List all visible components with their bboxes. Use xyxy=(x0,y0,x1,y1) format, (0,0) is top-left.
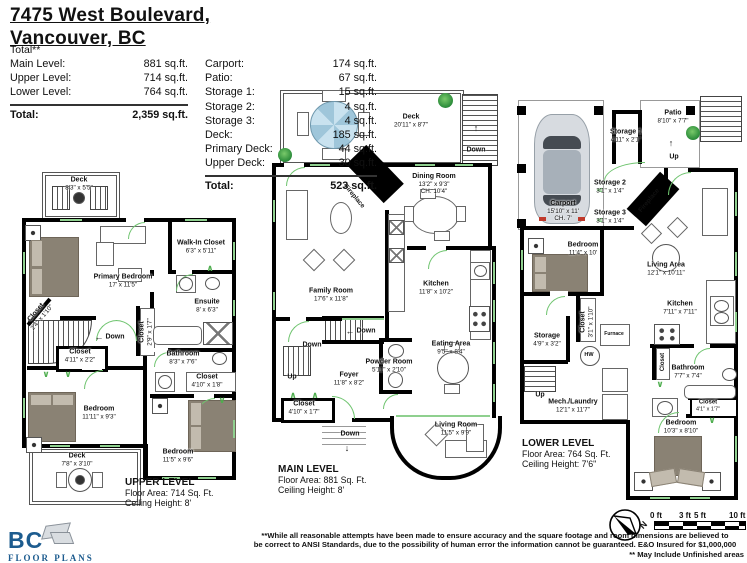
row-label: Upper Deck: xyxy=(205,156,265,170)
window xyxy=(455,164,473,166)
room-dims: 15'10" x 11' xyxy=(547,208,579,215)
address-line1: 7475 West Boulevard, xyxy=(10,4,210,27)
wall xyxy=(168,218,172,272)
door-arc xyxy=(546,296,565,315)
pillow xyxy=(52,394,74,406)
window xyxy=(60,219,82,221)
door-arc xyxy=(668,172,691,195)
area-table-levels: Main Level:881 sq.ft. Upper Level:714 sq… xyxy=(10,57,188,122)
room-label: Eating Area9'5" x 8'4" xyxy=(432,341,471,356)
stove xyxy=(469,306,490,332)
window xyxy=(415,164,435,166)
level-ceiling: Ceiling Height: 8' xyxy=(125,498,214,508)
room-name: Carport xyxy=(547,200,579,208)
room-dims: 11'4" x 10' xyxy=(568,250,599,257)
room-ceiling: CH. 10'4" xyxy=(412,188,456,195)
stairs-down-label: Down xyxy=(302,342,321,349)
room-dims: 4'11" x 2'2" xyxy=(65,357,96,364)
row-value: 4 sq.ft. xyxy=(345,114,377,128)
wall xyxy=(600,230,604,294)
car-taillight xyxy=(578,217,585,221)
room-name: Bedroom xyxy=(568,242,599,250)
room-dims: 8'3" x 7'6" xyxy=(166,359,199,366)
stairs-down-label: Down xyxy=(356,328,375,335)
room-label: Bedroom10'3" x 8'10" xyxy=(664,420,699,435)
table-total-row: Total:2,359 sq.ft. xyxy=(10,108,188,122)
bifold-door-icon: ∨ xyxy=(218,396,225,404)
room-name: Bathroom xyxy=(166,351,199,359)
bifold-door-icon: ∨ xyxy=(708,416,715,424)
row-value: 67 sq.ft. xyxy=(339,71,377,85)
wall xyxy=(524,360,568,364)
row-label: Lower Level: xyxy=(10,85,71,99)
nightstand xyxy=(702,472,721,491)
room-dims: 12'1" x 11'7" xyxy=(548,407,597,414)
room-name: Powder Room xyxy=(365,359,412,367)
level-ceiling: Ceiling Height: 7'6" xyxy=(522,459,611,469)
deck-chair xyxy=(92,472,103,488)
bifold-door-icon: ∧ xyxy=(206,264,213,272)
window xyxy=(493,384,495,402)
room-name: Closet xyxy=(696,399,720,407)
room-name: Kitchen xyxy=(419,281,453,289)
sink xyxy=(179,277,193,291)
post xyxy=(594,106,603,115)
room-label: Patio8'10" x 7'7" xyxy=(657,110,688,125)
room-dims: 9'5" x 8'4" xyxy=(432,349,471,356)
room-label: Closet4'10" x 1'7" xyxy=(288,401,319,416)
wall xyxy=(488,163,492,249)
room-name: Foyer xyxy=(334,372,365,380)
room-name: Family Room xyxy=(309,288,353,296)
wall xyxy=(524,226,634,230)
stairs-up-label: Up xyxy=(535,392,544,399)
room-name: Deck xyxy=(65,177,93,185)
room-name: Closet xyxy=(191,374,222,382)
scale-tick-label: 10 ft xyxy=(729,511,745,520)
total-value: 2,359 sq.ft. xyxy=(132,108,188,122)
coffee-table xyxy=(330,202,352,234)
dining-chair xyxy=(434,231,450,241)
car-taillight xyxy=(539,217,546,221)
scale-tick-label: 0 ft xyxy=(650,511,662,520)
window xyxy=(233,242,235,260)
level-title-block: MAIN LEVEL Floor Area: 881 Sq. Ft. Ceili… xyxy=(278,464,367,495)
room-dims: 2'9" x 1'7" xyxy=(147,318,154,346)
wall xyxy=(379,338,412,342)
stairs xyxy=(524,366,556,392)
row-value: 30 sq.ft. xyxy=(339,156,377,170)
row-label: Patio: xyxy=(205,71,233,85)
bifold-door-icon: ∧ xyxy=(311,391,318,399)
room-name: Storage 3 xyxy=(594,210,626,218)
wall xyxy=(272,317,290,321)
stairs xyxy=(462,94,498,166)
sink xyxy=(474,265,487,277)
room-dims: 4'11" x 2'1" xyxy=(610,137,642,144)
car-windshield xyxy=(543,136,581,149)
room-name: Deck xyxy=(61,453,92,461)
room-label: Mech./Laundry12'1" x 11'7" xyxy=(548,399,597,414)
room-dims: 6'3" x 5'11" xyxy=(177,248,225,255)
room-label: Bathroom8'3" x 7'6" xyxy=(166,351,199,366)
window xyxy=(233,300,235,316)
window xyxy=(735,252,737,276)
door-arc xyxy=(128,222,145,239)
door-arc xyxy=(428,250,447,269)
row-label: Deck: xyxy=(205,128,233,142)
room-label: Carport15'10" x 11'CH. 7' xyxy=(547,200,579,222)
door-arc xyxy=(332,396,355,419)
sink xyxy=(158,375,172,389)
row-label: Primary Deck: xyxy=(205,142,273,156)
pillow xyxy=(30,394,52,406)
room-name: Dining Room xyxy=(412,173,456,181)
window xyxy=(23,398,25,418)
row-label: Main Level: xyxy=(10,57,65,71)
room-name: HW xyxy=(584,351,593,359)
bathtub xyxy=(153,326,202,345)
room-dims: 3'1" x 1'4" xyxy=(594,218,626,225)
scale-tick-label: 5 ft xyxy=(694,511,706,520)
window xyxy=(735,312,737,332)
room-name: Eating Area xyxy=(432,341,471,349)
pillow xyxy=(31,240,43,267)
room-name: Closet xyxy=(580,306,588,337)
door-arc xyxy=(383,394,398,409)
room-dims: 11'11" x 9'3" xyxy=(82,414,116,421)
disclaimer-line2: be correct to ANSI Standards, due to the… xyxy=(245,540,745,549)
wall xyxy=(352,418,392,422)
wall xyxy=(566,316,570,362)
room-name: Storage 1 xyxy=(610,129,642,137)
sink xyxy=(388,344,404,358)
scale-bar-row xyxy=(655,526,745,530)
window xyxy=(690,497,710,499)
stairs-up-label: Up xyxy=(669,154,678,161)
wall xyxy=(306,317,342,321)
pillow xyxy=(31,268,43,295)
up-arrow-icon: ↑ xyxy=(474,123,479,133)
room-name: Bedroom xyxy=(82,406,116,414)
scale-bar xyxy=(654,521,746,530)
shrub-icon xyxy=(438,93,453,108)
room-label: Storage 23'1" x 1'4" xyxy=(594,180,626,195)
table-row: Patio:67 sq.ft. xyxy=(205,71,377,85)
armchair xyxy=(667,217,688,238)
room-ceiling: CH. 7' xyxy=(547,215,579,222)
room-name: Mech./Laundry xyxy=(548,399,597,407)
door-arc xyxy=(84,370,103,389)
room-label: Living Room11'5" x 9'9" xyxy=(435,422,477,437)
room-name: Patio xyxy=(657,110,688,118)
wall xyxy=(60,316,96,320)
row-label: Storage 1: xyxy=(205,85,255,99)
window xyxy=(50,445,70,447)
room-label: Kitchen7'11" x 7'11" xyxy=(663,301,697,316)
window xyxy=(735,192,737,216)
sink xyxy=(657,401,673,415)
logo-subtext: FLOOR PLANS xyxy=(8,553,94,563)
eating-table xyxy=(437,352,469,384)
room-dims: 11'5" x 9'9" xyxy=(435,430,477,437)
deck-table xyxy=(73,192,85,204)
armchair xyxy=(641,223,662,244)
room-dims: 7'7" x 7'4" xyxy=(671,373,704,380)
room-label: Storage4'9" x 3'2" xyxy=(533,333,561,348)
level-title: LOWER LEVEL xyxy=(522,438,611,449)
row-label: Storage 3: xyxy=(205,114,255,128)
room-dims: 13'2" x 9'3" xyxy=(412,181,456,188)
disclaimer-line1: **While all reasonable attempts have bee… xyxy=(245,531,745,540)
chair xyxy=(444,384,460,394)
dining-chair xyxy=(404,206,414,222)
level-area: Floor Area: 881 Sq. Ft. xyxy=(278,475,367,485)
bathtub xyxy=(684,385,736,399)
shower xyxy=(203,322,233,345)
room-label: Closet4'10" x 1'8" xyxy=(191,374,222,389)
total-label: Total: xyxy=(10,108,39,122)
row-value: 881 sq.ft. xyxy=(144,57,188,71)
level-ceiling: Ceiling Height: 8' xyxy=(278,485,367,495)
room-label: Closet3'1" x 1'10" xyxy=(580,306,595,337)
room-dims: 7'8" x 3'10" xyxy=(61,461,92,468)
armchair xyxy=(333,249,356,272)
room-name: Primary Bedroom xyxy=(94,274,153,282)
room-name: Closet xyxy=(139,318,147,346)
room-label: Primary Bedroom17' x 11'5" xyxy=(94,274,153,289)
room-label: Closet4'1" x 1'7" xyxy=(696,399,720,414)
room-label: Bedroom11'5" x 9'6" xyxy=(163,449,194,464)
appliance xyxy=(389,248,404,263)
logo-house-icon xyxy=(50,532,74,544)
armchair xyxy=(303,249,326,272)
room-dims: 4'10" x 1'7" xyxy=(288,409,319,416)
room-label: Closet2'9" x 1'7" xyxy=(139,318,154,346)
door-arc xyxy=(604,162,645,181)
level-title: UPPER LEVEL xyxy=(125,477,214,488)
room-name: Closet xyxy=(659,353,667,371)
steps-down-label: Down xyxy=(340,431,359,438)
bifold-door-icon: ∧ xyxy=(289,391,296,399)
open-boundary xyxy=(396,415,490,417)
table-row: Storage 2:4 sq.ft. xyxy=(205,100,377,114)
room-name: Closet xyxy=(288,401,319,409)
toilet xyxy=(205,277,220,290)
room-dims: 8' x 6'3" xyxy=(194,307,219,314)
room-name: Bedroom xyxy=(163,449,194,457)
dining-table xyxy=(411,196,459,234)
room-label: Deck20'11" x 8'7" xyxy=(394,114,428,129)
stairs xyxy=(700,96,742,142)
room-label: Storage 14'11" x 2'1" xyxy=(610,129,642,144)
pillow xyxy=(534,273,547,290)
window xyxy=(185,219,207,221)
logo-text: BC xyxy=(8,527,43,554)
divider xyxy=(10,104,188,106)
pillow xyxy=(190,426,202,450)
dryer xyxy=(602,394,628,420)
nightstand xyxy=(25,225,41,241)
room-dims: 20'11" x 8'7" xyxy=(394,122,428,129)
toilet xyxy=(722,368,737,381)
post xyxy=(517,164,526,173)
toilet xyxy=(212,352,227,365)
window xyxy=(650,497,670,499)
room-dims: 5'11" x 2'10" xyxy=(365,367,412,374)
room-name: Ensuite xyxy=(194,299,219,307)
room-name: Kitchen xyxy=(663,301,697,309)
table-row: Upper Deck:30 sq.ft. xyxy=(205,156,377,170)
room-dims: 7'11" x 7'11" xyxy=(663,309,697,316)
stairs-down-label: Down xyxy=(466,147,485,154)
dining-chair xyxy=(456,206,466,222)
divider xyxy=(205,175,377,177)
room-name: Furnace xyxy=(604,330,623,338)
room-name: Living Room xyxy=(435,422,477,430)
room-dims: 4'9" x 3'2" xyxy=(533,341,561,348)
sofa xyxy=(702,188,728,236)
left-arrow-icon: ← xyxy=(95,332,104,342)
bifold-door-icon: ∨ xyxy=(64,370,71,378)
stove xyxy=(654,324,680,345)
sink xyxy=(714,300,729,312)
door-arc xyxy=(288,321,309,342)
table-row: Carport:174 sq.ft. xyxy=(205,57,377,71)
row-value: 15 sq.ft. xyxy=(339,85,377,99)
bifold-door-icon: ∨ xyxy=(42,370,49,378)
sofa xyxy=(286,190,308,240)
room-label: Dining Room13'2" x 9'3"CH. 10'4" xyxy=(412,173,456,195)
room-dims: 11'8" x 8'2" xyxy=(334,380,365,387)
room-name: Bedroom xyxy=(664,420,699,428)
room-dims: 17' x 11'5" xyxy=(94,282,153,289)
disclaimer: **While all reasonable attempts have bee… xyxy=(245,531,745,550)
room-label: Closet xyxy=(659,353,667,371)
pillow xyxy=(190,402,202,426)
room-dims: 8'10" x 7'7" xyxy=(657,118,688,125)
compass: N xyxy=(606,504,648,546)
room-label: Living Area12'1" x 10'11" xyxy=(647,262,685,277)
down-arrow-icon: ↓ xyxy=(345,443,350,453)
shrub-icon xyxy=(686,126,700,140)
room-label: Bedroom11'11" x 9'3" xyxy=(82,406,116,421)
room-label: Deck8'3" x 5'5" xyxy=(65,177,93,192)
deck-chair xyxy=(56,472,67,488)
sofa xyxy=(96,242,114,266)
window xyxy=(233,420,235,438)
room-label: Powder Room5'11" x 2'10" xyxy=(365,359,412,374)
up-arrow-icon: ↑ xyxy=(669,138,674,148)
window xyxy=(521,250,523,270)
room-name: Closet xyxy=(65,349,96,357)
row-value: 4 sq.ft. xyxy=(345,100,377,114)
pillow xyxy=(649,468,677,487)
nightstand xyxy=(528,238,544,254)
window xyxy=(100,445,120,447)
room-dims: 10'3" x 8'10" xyxy=(664,428,699,435)
room-dims: 17'6" x 11'8" xyxy=(309,296,353,303)
toilet xyxy=(388,372,403,388)
room-label: Storage 33'1" x 1'4" xyxy=(594,210,626,225)
level-title-block: LOWER LEVEL Floor Area: 764 Sq. Ft. Ceil… xyxy=(522,438,611,469)
room-label: Deck7'8" x 3'10" xyxy=(61,453,92,468)
room-dims: 4'1" x 1'7" xyxy=(696,407,720,414)
table-row: Deck:185 sq.ft. xyxy=(205,128,377,142)
room-dims: 3'1" x 1'4" xyxy=(594,188,626,195)
stairs-down-label: Down xyxy=(105,334,124,341)
area-table-extras: Carport:174 sq.ft. Patio:67 sq.ft. Stora… xyxy=(205,57,377,193)
room-dims: 8'3" x 5'5" xyxy=(65,185,93,192)
door-gap xyxy=(668,168,688,172)
window xyxy=(273,292,275,310)
pillow xyxy=(677,468,705,487)
open-boundary xyxy=(342,318,384,320)
table-row: Primary Deck:44 sq.ft. xyxy=(205,142,377,156)
room-name: Living Area xyxy=(647,262,685,270)
room-label: Furnace xyxy=(604,330,623,338)
post xyxy=(517,106,526,115)
room-label: Ensuite8' x 6'3" xyxy=(194,299,219,314)
wall xyxy=(626,496,738,500)
door-arc xyxy=(694,348,710,364)
room-label: HW xyxy=(584,351,593,359)
wall xyxy=(322,340,384,344)
room-label: Bedroom11'4" x 10' xyxy=(568,242,599,257)
room-label: Walk-In Closet6'3" x 5'11" xyxy=(177,240,225,255)
scale-tick-label: 3 ft xyxy=(679,511,691,520)
level-title: MAIN LEVEL xyxy=(278,464,367,475)
stairs-up-label: Up xyxy=(287,374,296,381)
room-name: Walk-In Closet xyxy=(177,240,225,248)
deck-table xyxy=(75,475,85,485)
wall xyxy=(710,344,736,348)
room-dims: 11'5" x 9'6" xyxy=(163,457,194,464)
row-label: Storage 2: xyxy=(205,100,255,114)
nightstand xyxy=(152,398,168,414)
room-label: Family Room17'6" x 11'8" xyxy=(309,288,353,303)
table-row: Main Level:881 sq.ft. xyxy=(10,57,188,71)
window xyxy=(23,252,25,274)
window xyxy=(273,200,275,222)
level-area: Floor Area: 714 Sq. Ft. xyxy=(125,488,214,498)
window xyxy=(735,436,737,462)
row-value: 714 sq.ft. xyxy=(144,71,188,85)
room-dims: 11'8" x 10'2" xyxy=(419,289,453,296)
room-label: Foyer11'8" x 8'2" xyxy=(334,372,365,387)
pillow xyxy=(534,256,547,273)
nightstand xyxy=(26,437,42,453)
level-title-block: UPPER LEVEL Floor Area: 714 Sq. Ft. Ceil… xyxy=(125,477,214,508)
table-row: Storage 3:4 sq.ft. xyxy=(205,114,377,128)
stairs xyxy=(283,346,311,376)
total-label: Total: xyxy=(205,179,234,193)
table-row: Storage 1:15 sq.ft. xyxy=(205,85,377,99)
sink xyxy=(714,312,729,324)
wall xyxy=(524,420,630,424)
room-dims: 12'1" x 10'11" xyxy=(647,270,685,277)
wall xyxy=(626,420,630,500)
table-row: Lower Level:764 sq.ft. xyxy=(10,85,188,99)
window xyxy=(493,342,495,364)
left-arrow-icon: ← xyxy=(346,326,355,336)
table-row: Upper Level:714 sq.ft. xyxy=(10,71,188,85)
row-label: Upper Level: xyxy=(10,71,71,85)
row-value: 764 sq.ft. xyxy=(144,85,188,99)
row-value: 174 sq.ft. xyxy=(333,57,377,71)
room-label: Bathroom7'7" x 7'4" xyxy=(671,365,704,380)
level-area: Floor Area: 764 Sq. Ft. xyxy=(522,449,611,459)
